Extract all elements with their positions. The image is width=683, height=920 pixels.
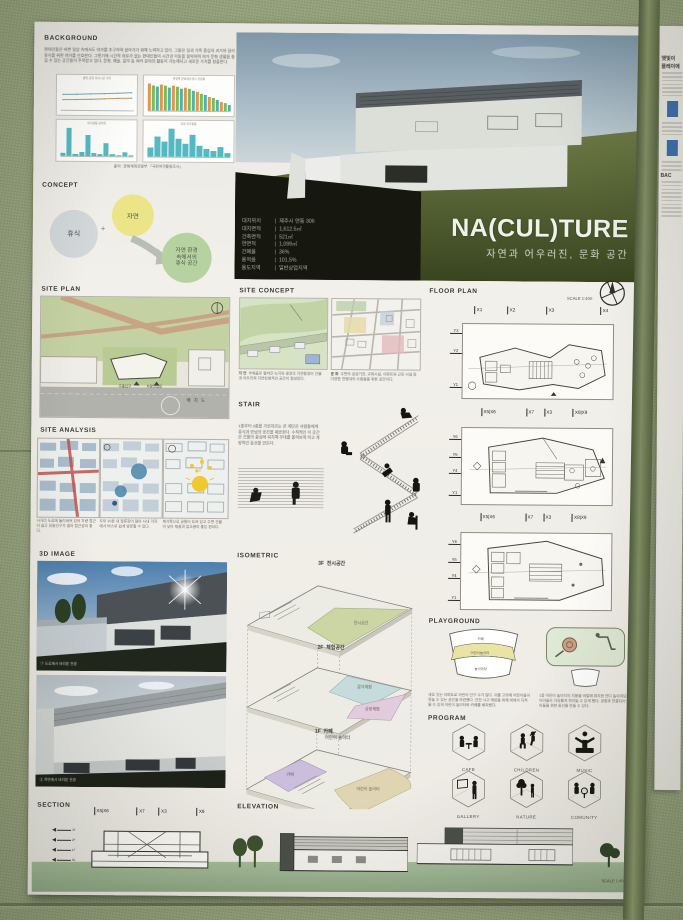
isometric-section-title: ISOMETRIC: [237, 552, 279, 559]
site-concept-map-culture: [331, 298, 422, 371]
bar: [203, 95, 206, 111]
bar-group: [147, 128, 153, 156]
program-label: COMUNITY: [556, 815, 612, 820]
cafe-icon: [452, 723, 486, 761]
bar-group: [128, 128, 133, 156]
background-paragraph: 현대인들은 바쁜 일상 속에서도 여가를 추구하며 살아가기 위해 노력하고 있…: [44, 47, 236, 65]
compass-icon: [597, 278, 627, 308]
site-analysis-caption-2: 도보 10분 내 정류장이 많아 시내 각지에서 버스로 쉽게 방문할 수 있다…: [99, 519, 159, 529]
bar-group: [172, 84, 183, 111]
project-subtitle: 자연과 어우러진, 문화 공간: [451, 245, 629, 261]
bar: [196, 146, 202, 157]
floor-plan-scale: SCALE 1:400: [522, 295, 592, 301]
level-marker: 3F: [52, 825, 76, 835]
grid-axis-label: Y1: [448, 595, 460, 601]
grid-axis-label: X7: [137, 807, 145, 815]
bar: [182, 143, 188, 156]
floor-plan-section-title: FLOOR PLAN: [429, 288, 477, 295]
program-item-children: CHILDREN: [499, 723, 555, 772]
playground-section-title: PLAYGROUND: [429, 618, 481, 625]
iso-floor-label-1f: 1F 카페어린이 놀이터: [315, 728, 351, 741]
floor-plan-level1: Y3Y2Y1: [461, 323, 614, 400]
grid-labels-row: X5|X6X7X3X8|X9: [461, 513, 611, 524]
grid-axis-label: Y4: [448, 573, 460, 579]
bar-group: [79, 128, 84, 156]
site-analysis-map-sunlight: [163, 439, 230, 520]
elevation-scale: SCALE 1:400: [601, 878, 625, 883]
concept-circle-rest: 휴식: [50, 210, 98, 258]
program-item-cafe: CAFE: [441, 723, 497, 772]
fabric-seam-bottom: [0, 903, 683, 906]
grid-axis-label: X8|X9: [572, 514, 587, 522]
bar: [224, 153, 230, 157]
grid-labels-row: X5|X6X7X3X8|X9: [461, 408, 611, 419]
bar-group: [60, 128, 65, 156]
iso-zone-cafe: 카페: [287, 772, 294, 778]
site-plan-label-entrance: 주출입구: [119, 383, 132, 388]
program-item-music: MUSIC: [557, 724, 613, 773]
stair-lines-diagram: [238, 466, 324, 511]
bar-group: [104, 128, 109, 156]
iso-zone-exhibition: 전시공간: [354, 620, 369, 626]
playground-fan-diagram: 카페 어린이놀이터 놀이마당: [437, 628, 529, 683]
chart-desired-bars: 희망 여가활동: [142, 119, 234, 163]
render-view-2: ② 측면에서 바라본 전경: [35, 675, 226, 788]
concept-circle-result: 자연 환경 속에서의 휴식 공간: [161, 233, 211, 283]
program-item-gallery: GALLERY: [440, 770, 496, 819]
grid-axis-label: X3: [546, 307, 554, 315]
grid-axis-label: Y1: [450, 382, 462, 388]
bar: [155, 87, 159, 111]
elevation-section-title: ELEVATION: [237, 803, 279, 810]
grid-axis-label: X9: [196, 808, 204, 816]
bar-group: [189, 129, 195, 157]
bar: [104, 143, 109, 156]
hero-rendering: 대지위치|제주시 연동 306대지면적|1,612.5㎡건축면적|521㎡연면적…: [234, 32, 646, 282]
floor-plan-level3: Y6Y5Y4Y1: [460, 532, 613, 611]
photo-of-poster-wall: { "wall": {"color": "#94a07b", "column_c…: [0, 0, 683, 920]
grid-axis-label: X1: [474, 306, 482, 314]
program-label: NATURE: [498, 814, 554, 819]
comunity-icon: [567, 771, 601, 809]
three-d-section-title: 3D IMAGE: [39, 551, 75, 558]
bar-group: [182, 129, 188, 157]
chart-activity-bars: 여가활동 참여율: [55, 119, 137, 163]
site-concept-section-title: SITE CONCEPT: [239, 287, 294, 294]
bar-group: [85, 128, 90, 156]
fabric-seam-left: [0, 450, 31, 452]
iso-zone-music: 음악체험: [357, 684, 372, 690]
grid-labels-row: X5|X6X7X3X9: [90, 807, 212, 818]
concept-section-title: CONCEPT: [42, 182, 78, 189]
bar-group: [196, 84, 207, 111]
site-concept-map-nature: [239, 297, 329, 370]
site-analysis-map-roads: [37, 438, 101, 518]
bar-group: [116, 128, 121, 156]
bar-group: [73, 128, 78, 156]
bar: [175, 138, 181, 157]
bar: [191, 91, 194, 111]
project-title: NA(CUL)TURE: [451, 214, 629, 244]
render-view-1: ① 도로에서 바라본 전경: [36, 561, 227, 672]
bar: [154, 136, 160, 156]
bar-group: [110, 128, 115, 156]
iso-zone-playground: 어린이 놀이터: [356, 786, 379, 792]
bar-group: [97, 128, 102, 156]
bar: [210, 151, 216, 157]
neighbor-text-fragment: BAC: [661, 173, 683, 179]
grid-axis-label: Y6: [448, 539, 460, 545]
grid-axis-label: X2: [507, 306, 515, 314]
site-plan-caption: 배 치 도: [186, 398, 206, 404]
nature-icon: [509, 770, 543, 808]
grid-axis-label: X5|X6: [94, 807, 109, 815]
bar: [167, 87, 171, 111]
bar: [85, 135, 90, 156]
fan-label-yard: 놀이마당: [474, 666, 487, 671]
bar-group: [217, 129, 223, 157]
grid-axis-label: Y6: [449, 434, 461, 440]
site-analysis-section-title: SITE ANALYSIS: [40, 427, 96, 434]
neighbor-mini-chart: [667, 101, 678, 117]
bar-group: [175, 129, 181, 157]
chart-title: 희망 여가활동: [144, 121, 234, 126]
grid-axis-label: X3: [544, 409, 552, 417]
chart-leisure-time-line: 평일·휴일 여가시간 추이: [56, 74, 138, 117]
bar: [227, 105, 230, 111]
iso-floor-label-2f: 2F 체험공간: [318, 644, 345, 651]
bar: [91, 154, 96, 157]
site-plan-label-vehicle: 차량진입로: [147, 383, 163, 388]
playground-caption-1: 새로 짓는 아파트로 어린이 인구 수가 많다. 이를 고려해 어린이들이 뛰놀…: [428, 693, 530, 709]
bar-group: [224, 129, 230, 157]
grid-axis-label: X3: [159, 808, 167, 816]
bar-group: [184, 84, 195, 111]
section-level-markers: 3F2F1FGL: [52, 825, 76, 865]
section-section-title: SECTION: [37, 802, 70, 809]
bar-group: [208, 84, 219, 111]
hero-title-block: NA(CUL)TURE 자연과 어우러진, 문화 공간: [451, 214, 629, 261]
bar-group: [161, 129, 167, 157]
bar-group: [122, 128, 127, 156]
grid-axis-label: Y3: [450, 328, 462, 334]
bar: [161, 142, 167, 157]
bar: [217, 148, 223, 158]
bar: [203, 149, 209, 157]
grid-axis-label: X3: [543, 514, 551, 522]
bar: [189, 135, 195, 157]
bar-group: [196, 129, 202, 157]
render-caption-2: ② 측면에서 바라본 전경: [39, 778, 75, 783]
bar-group: [168, 129, 174, 157]
playground-roof-diagram: [545, 627, 625, 690]
bar: [73, 154, 78, 156]
bar: [116, 155, 121, 156]
grid-axis-label: X5|X6: [481, 408, 496, 416]
level-marker: 2F: [52, 835, 76, 845]
chart-title: 연령별 문화예술행사 관람률: [144, 76, 234, 81]
grid-axis-label: X7: [526, 408, 534, 416]
bar: [97, 154, 102, 156]
bar: [128, 155, 133, 156]
bar: [110, 155, 115, 157]
grid-labels-row: X1X2X3X4: [462, 306, 612, 317]
chart-title: 여가활동 참여율: [57, 121, 137, 126]
program-item-comunity: COMUNITY: [556, 771, 612, 820]
site-concept-caption-culture: 문 화 주변의 공공기관, 교육시설, 아파트와 근린 시설 등 다양한 연령대…: [331, 372, 419, 383]
isometric-diagram: 3F 전시공간 전시공간 2F 체험공간 음악체험 공방체험 1F 카페어린이 …: [238, 563, 435, 810]
fan-label-kids: 어린이놀이터: [470, 650, 489, 655]
site-analysis-map-transit: [100, 438, 164, 518]
bar: [122, 153, 127, 157]
bar: [179, 89, 183, 111]
site-concept-caption-nature: 자 연 부채꼴로 펼쳐진 녹지와 광장의 자연환경이 건물과 어우러져 자연친화…: [239, 371, 325, 382]
grid-axis-label: Y1: [449, 490, 461, 496]
site-plan-section-title: SITE PLAN: [41, 286, 80, 293]
stair-section-title: STAIR: [238, 401, 260, 408]
grid-axis-label: X7: [525, 513, 533, 521]
program-label: GALLERY: [440, 814, 496, 819]
site-plan-map: 주출입구 차량진입로 배 치 도: [39, 296, 230, 419]
program-item-nature: NATURE: [498, 770, 554, 819]
grid-axis-label: Y4: [449, 468, 461, 474]
program-section-title: PROGRAM: [428, 715, 466, 722]
chart-source-caption: 출처 : 문화체육관광부 「국민여가활동조사」: [73, 164, 223, 170]
concept-circle-nature: 자연: [112, 194, 154, 236]
gallery-icon: [451, 770, 485, 808]
grid-axis-label: Y5: [449, 452, 461, 458]
section-drawing: [88, 825, 212, 874]
grid-axis-label: X8|X9: [572, 409, 587, 417]
bar-group: [210, 129, 216, 157]
chart-attendance-bars: 연령별 문화예술행사 관람률: [143, 74, 235, 117]
isometric-drawing: [238, 563, 435, 810]
background-section-title: BACKGROUND: [44, 35, 98, 42]
elevation-drawing-1: [280, 830, 408, 875]
site-analysis-caption-1: 사거리 도로에 둘러싸여 있어 차량 접근이 쉽고 유동인구가 많아 접근성이 …: [36, 519, 96, 534]
hero-spec-list: 대지위치|제주시 연동 306대지면적|1,612.5㎡건축면적|521㎡연면적…: [241, 218, 314, 273]
elevation-drawing-2: [417, 827, 573, 868]
tree-icon: [598, 842, 622, 868]
bar-group: [148, 83, 159, 110]
children-icon: [510, 723, 544, 761]
bar-group: [160, 84, 171, 111]
bar-group: [67, 128, 72, 156]
bar-group: [220, 84, 231, 111]
bar: [147, 148, 153, 157]
bar-group: [91, 128, 96, 156]
bar: [79, 151, 84, 156]
neighbor-text-fragment: 햇빛이: [661, 55, 683, 62]
tree-pair-icon: [231, 835, 265, 869]
architecture-poster: BACKGROUND 현대인들은 바쁜 일상 속에서도 여가를 추구하며 살아가…: [28, 22, 649, 900]
concept-plus: +: [101, 224, 106, 233]
neighbor-text-fragment: 플레이에: [661, 63, 683, 70]
render-caption-1: ① 도로에서 바라본 전경: [40, 662, 76, 667]
stair-zigzag-diagram: [327, 407, 424, 536]
stair-paragraph: 1층부터 3층을 가로지르는 큰 계단은 사람들에게 휴식과 만남의 공간을 제…: [238, 423, 320, 446]
site-analysis-caption-3: 북서쪽으로 공원이 트여 있고 주변 건물이 낮아 채광과 일조량이 좋은 편이…: [162, 520, 224, 530]
fan-label-cafe: 카페: [478, 636, 484, 641]
grid-axis-label: X5|X6: [480, 513, 495, 521]
bar: [215, 100, 218, 111]
neighbor-mini-chart: [666, 140, 677, 156]
bar-group: [203, 129, 209, 157]
music-icon: [568, 724, 602, 762]
level-marker: 1F: [52, 845, 76, 855]
line-chart-plot: [61, 83, 134, 111]
spec-row: 용도지역|일반상업지역: [241, 265, 314, 273]
iso-floor-label-3f: 3F 전시공간: [318, 560, 345, 567]
bar: [67, 128, 72, 156]
grid-axis-label: Y2: [450, 348, 462, 354]
floor-plan-level2: Y6Y5Y4Y1: [461, 427, 614, 506]
grid-axis-label: X4: [600, 307, 608, 315]
iso-zone-craft: 공방체험: [365, 706, 380, 712]
bar: [168, 129, 174, 157]
grid-axis-label: Y5: [448, 557, 460, 563]
neighbor-poster-sliver: 햇빛이 플레이에 BAC: [654, 26, 683, 790]
bar-group: [154, 129, 160, 157]
bar: [60, 153, 65, 156]
chart-title: 평일·휴일 여가시간 추이: [57, 76, 137, 81]
